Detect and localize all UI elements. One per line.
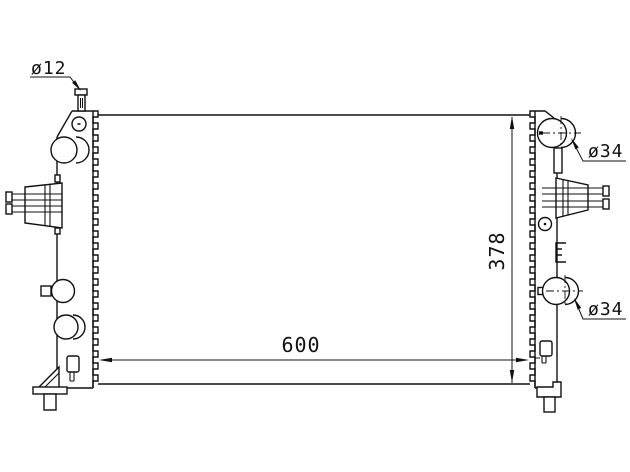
right-foot (537, 382, 561, 397)
right-connector-body (556, 178, 588, 218)
width-dim-arrow-left (99, 358, 112, 362)
callout-pin-diameter: ø12 (30, 58, 81, 91)
bleed-pin-body (78, 95, 85, 111)
sensor-port (52, 280, 75, 303)
height-dim-label: 378 (485, 231, 509, 270)
left-clip-stem (70, 372, 74, 381)
radiator-technical-drawing: 600 378 ø12 ø34 ø34 (0, 0, 630, 472)
drawing-canvas: 600 378 ø12 ø34 ø34 (0, 0, 630, 472)
right-small-hole-dot (544, 223, 547, 226)
width-dim-label: 600 (281, 333, 320, 357)
right-stub (554, 148, 562, 173)
right-pipe-end-bottom (603, 199, 609, 209)
left-top-port-back-edge (76, 137, 89, 163)
left-bottom-port (54, 315, 78, 339)
bleed-pin-cap (75, 89, 87, 95)
right-top-port-tick (539, 131, 543, 134)
bleed-pin (75, 89, 87, 111)
left-tank-crimp-teeth (93, 111, 98, 388)
bottom-port-diameter-label: ø34 (588, 299, 624, 320)
dimension-width-600: 600 (99, 333, 529, 362)
left-foot (33, 387, 67, 394)
right-clip-stem (535, 356, 546, 363)
width-dim-arrow-right (516, 358, 529, 362)
right-mount-bracket (537, 382, 561, 412)
height-dim-arrow-bottom (510, 370, 514, 383)
left-gusset (38, 367, 59, 388)
right-tank-crimp-teeth (530, 111, 535, 388)
left-clip (67, 356, 79, 381)
left-connector (6, 175, 62, 234)
left-clip-head (67, 356, 79, 372)
left-pipe-end-bottom (6, 204, 12, 214)
height-dim-arrow-top (510, 116, 514, 129)
left-tank-chamfer (57, 111, 72, 137)
right-clip (535, 341, 552, 363)
left-connector-tab-top (55, 175, 60, 182)
left-tank-features (6, 89, 89, 410)
left-mount-pin (44, 394, 56, 410)
dimension-height-378: 378 (485, 116, 514, 383)
right-connector (542, 178, 609, 218)
pin-diameter-label: ø12 (31, 58, 67, 79)
right-mount-pin (544, 397, 555, 412)
sensor-tab (41, 286, 51, 296)
left-top-port (51, 137, 77, 163)
left-mount-bracket (33, 367, 67, 410)
callout-bottom-port-diameter: ø34 (574, 298, 626, 320)
left-pipe-end-top (6, 192, 12, 202)
callout-top-port-diameter: ø34 (571, 138, 626, 162)
left-connector-tab-bottom (55, 228, 60, 234)
bottom-port-diameter-arrow (574, 298, 581, 310)
top-port-diameter-label: ø34 (588, 141, 624, 162)
right-pipe-end-top (603, 186, 609, 196)
right-clip-head (540, 341, 552, 356)
top-port-diameter-arrow (571, 138, 579, 149)
right-tank-top-edge (535, 111, 554, 118)
